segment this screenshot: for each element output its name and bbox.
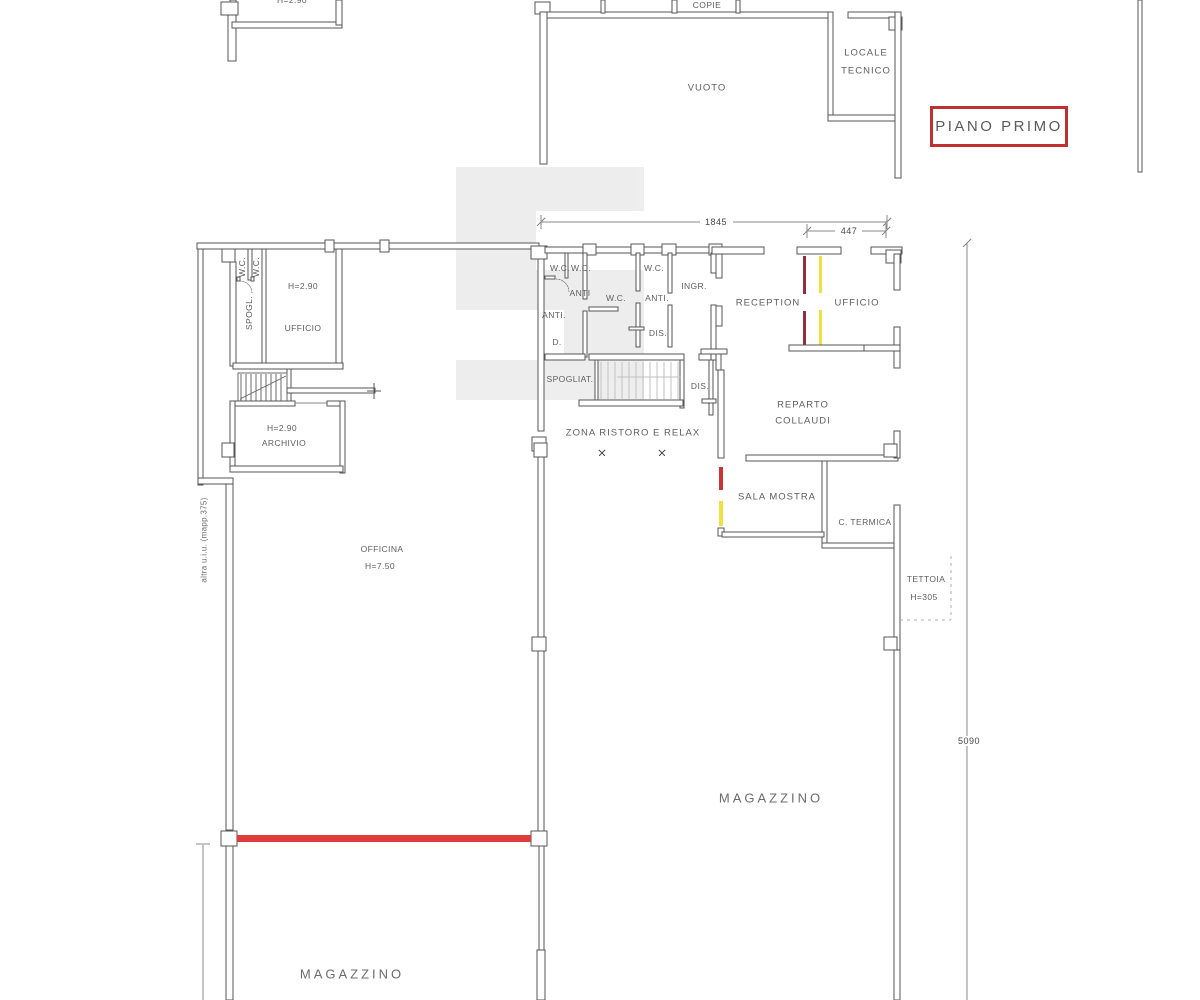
floor-title-label: PIANO PRIMO	[935, 118, 1063, 135]
height-label-tettoia: H=305	[910, 592, 937, 602]
room-label-spogliatoio: SPOGLIAT.	[547, 374, 594, 384]
room-label-zona-ristoro: ZONA RISTORO E RELAX	[566, 428, 700, 439]
room-label-reparto-2: COLLAUDI	[775, 416, 831, 427]
room-label-vuoto: VUOTO	[688, 83, 727, 94]
height-label-officina: H=7.50	[365, 561, 395, 571]
tettoia-dashed-edge	[900, 556, 951, 620]
room-label-reception: RECEPTION	[736, 298, 800, 309]
highlight-red-wall	[237, 835, 531, 842]
walls-officina	[196, 246, 547, 1000]
room-label-ufficio-right: UFFICIO	[835, 298, 880, 309]
annotation-adjacent-unit: altra u.i.u. (mapp.375)	[200, 497, 209, 582]
room-label-anti-b: ANTI.	[542, 310, 566, 320]
dimension-right-height: 5090	[955, 736, 983, 746]
floorplan-scan-page: PIANO PRIMO COPIE LOCALE TECNICO VUOTO H…	[0, 0, 1200, 1000]
walls-left-block	[197, 240, 539, 1000]
room-label-c-termica: C. TERMICA	[839, 517, 892, 527]
room-label-wc-c: W.C.	[550, 263, 570, 273]
room-label-wc-e: W.C.	[606, 293, 626, 303]
room-label-d: D.	[552, 337, 561, 347]
height-label-ufficio-left: H=2.90	[288, 281, 318, 291]
room-label-reparto-1: REPARTO	[777, 400, 829, 411]
room-label-ufficio-left: UFFICIO	[285, 323, 322, 333]
room-label-magazzino-right: MAGAZZINO	[719, 791, 823, 806]
floor-title-badge: PIANO PRIMO	[930, 106, 1068, 147]
floorplan-linework	[0, 0, 1200, 1000]
room-label-officina: OFFICINA	[361, 544, 404, 554]
room-label-locale-tecnico-1: LOCALE	[844, 48, 888, 59]
room-label-dis-a: DIS.	[649, 328, 667, 338]
room-label-dis-b: DIS.	[691, 381, 709, 391]
room-label-copie: COPIE	[693, 0, 721, 10]
room-label-wc-a: W.C.	[237, 257, 247, 277]
room-label-tettoia: TETTOIA	[907, 574, 946, 584]
room-label-ingresso: INGR.	[681, 281, 707, 291]
room-label-wc-f: W.C.	[644, 263, 664, 273]
demolition-marks	[719, 256, 822, 526]
column-marks	[599, 450, 665, 456]
room-label-anti-c: ANTI.	[645, 293, 669, 303]
room-label-spogl: SPOGL.	[244, 296, 254, 330]
room-label-anti-a: ANTI	[570, 288, 591, 298]
height-label-archivio: H=2.90	[267, 423, 297, 433]
walls-right-block	[701, 247, 951, 1000]
height-label-top-left: H=2.90	[277, 0, 307, 5]
walls-top-section	[221, 0, 1142, 178]
watermark-shape	[456, 167, 644, 400]
room-label-archivio: ARCHIVIO	[262, 438, 306, 448]
room-label-magazzino-bottom: MAGAZZINO	[300, 967, 404, 982]
dimension-top-width: 1845	[702, 217, 730, 227]
room-label-sala-mostra: SALA MOSTRA	[738, 492, 816, 503]
room-label-wc-b: W.C.	[251, 257, 261, 277]
dimension-office-width: 447	[838, 226, 861, 236]
room-label-wc-d: W.C.	[571, 263, 591, 273]
room-label-locale-tecnico-2: TECNICO	[841, 66, 891, 77]
